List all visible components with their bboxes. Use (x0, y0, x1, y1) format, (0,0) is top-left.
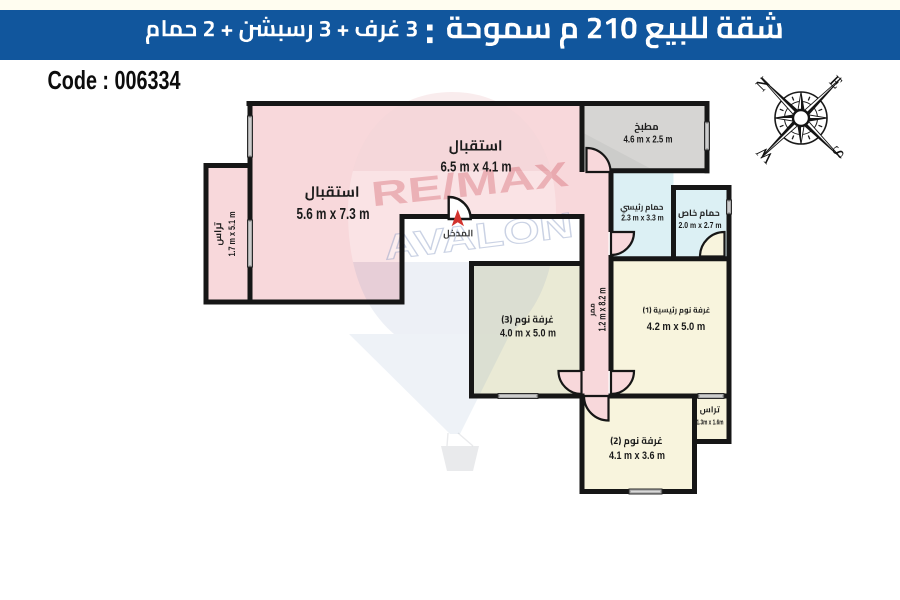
svg-text:4.0 m x 5.0 m: 4.0 m x 5.0 m (500, 327, 556, 339)
svg-text:2.0 m x 2.7 m: 2.0 m x 2.7 m (679, 220, 722, 230)
svg-text:4.6 m x 2.5 m: 4.6 m x 2.5 m (624, 135, 673, 146)
svg-text:6.5 m x 4.1 m: 6.5 m x 4.1 m (441, 159, 512, 175)
svg-text:1.7 m x 5.1 m: 1.7 m x 5.1 m (227, 212, 238, 257)
svg-text:4.1 m x 3.6 m: 4.1 m x 3.6 m (609, 450, 665, 462)
svg-text:2.3 m x 3.3 m: 2.3 m x 3.3 m (621, 212, 664, 222)
svg-text:Code : 006334: Code : 006334 (48, 65, 181, 95)
svg-text:4.2 m x 5.0 m: 4.2 m x 5.0 m (647, 321, 706, 333)
svg-text:1.2 m x 8.2 m: 1.2 m x 8.2 m (598, 287, 609, 331)
svg-text:5.6 m x 7.3 m: 5.6 m x 7.3 m (297, 206, 370, 223)
svg-text:1.3m x 1.6m: 1.3m x 1.6m (697, 417, 724, 426)
